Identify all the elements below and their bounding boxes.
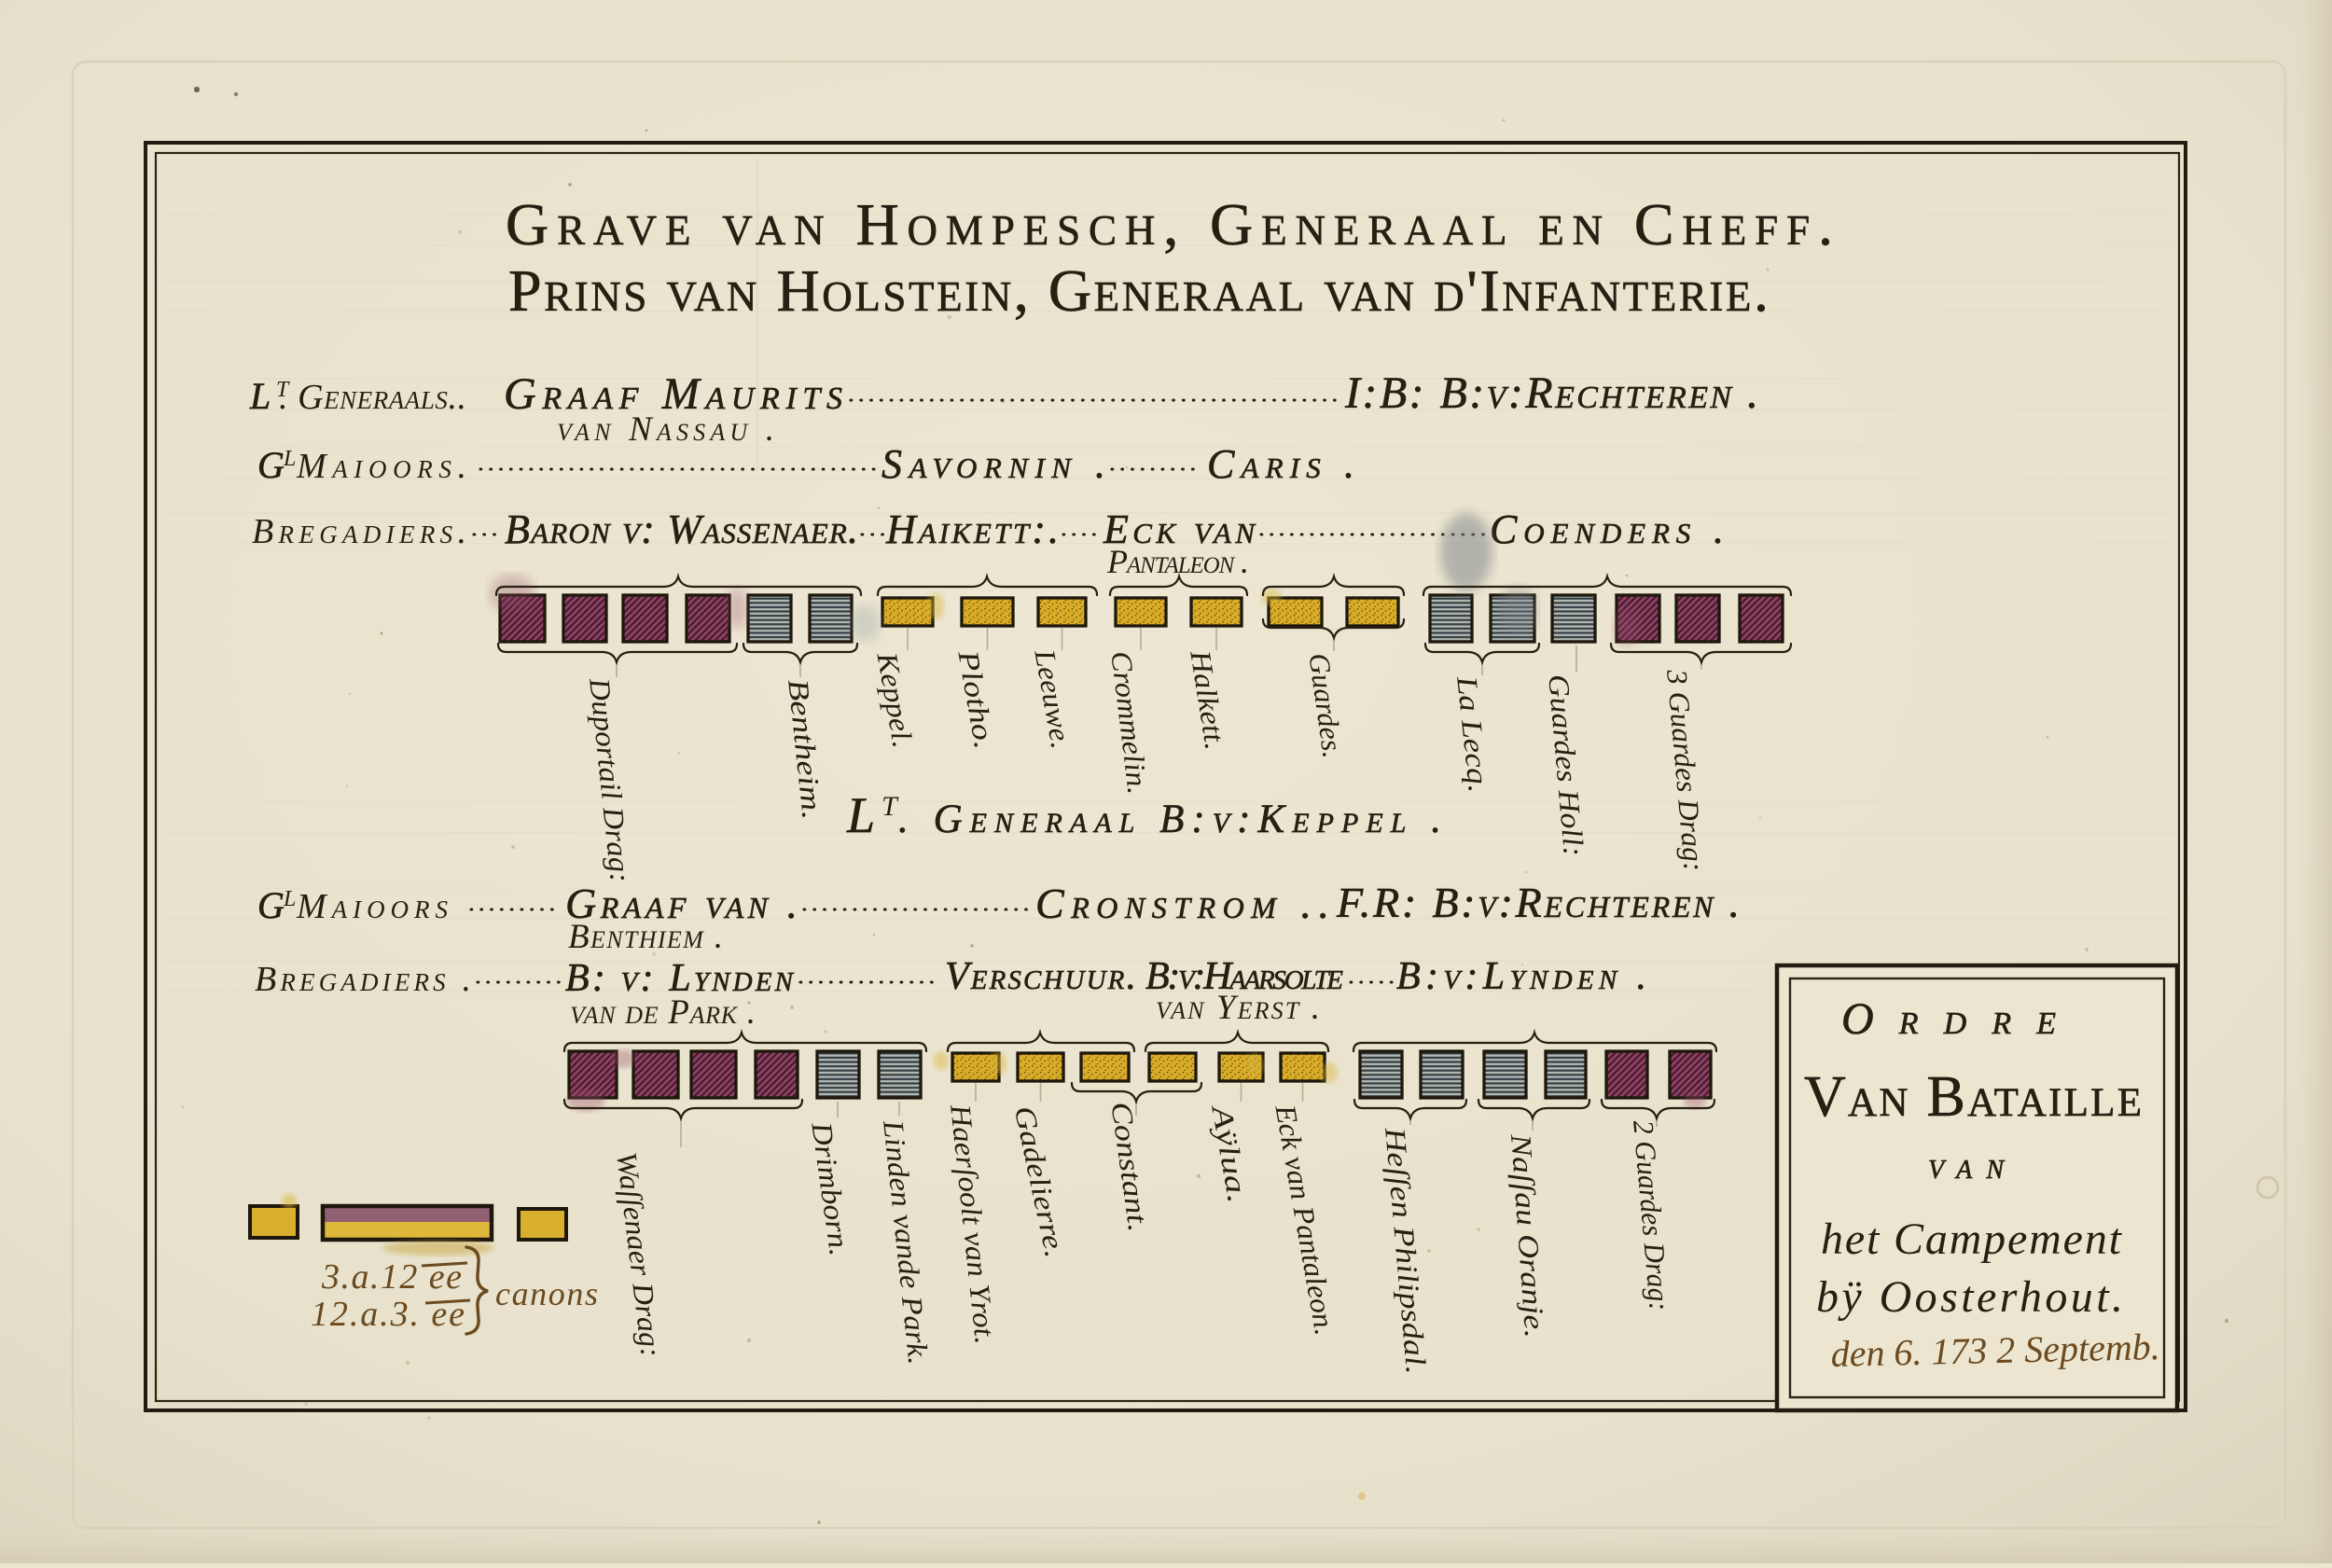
svg-text:12.a.3. ee: 12.a.3. ee [311,1295,465,1334]
svg-text:G: G [257,884,285,926]
svg-text:F.R: B:v:Rechteren .: F.R: B:v:Rechteren . [1336,879,1740,926]
svg-text:het Campement: het Campement [1821,1214,2123,1264]
svg-text:G: G [257,444,285,486]
svg-text:Verschuur.: Verschuur. [945,955,1136,998]
svg-text:. Generaals..: . Generaals.. [279,378,466,417]
svg-text:Maioors.: Maioors. [296,447,466,486]
svg-text:T: T [881,791,899,822]
svg-text:B:v:Lynden .: B:v:Lynden . [1396,955,1646,998]
svg-text:van Nassau .: van Nassau . [557,410,774,449]
svg-text:Pantaleon .: Pantaleon . [1106,543,1249,580]
svg-text:L: L [283,447,296,471]
svg-text:Caris .: Caris . [1207,441,1354,487]
svg-text:Cronstrom ..: Cronstrom .. [1035,880,1329,927]
svg-text:den 6. 173 2 Septemb.: den 6. 173 2 Septemb. [1830,1325,2160,1375]
svg-text:Graaf Maurits: Graaf Maurits [504,369,842,419]
svg-text:Bregadiers .: Bregadiers . [255,960,471,999]
svg-text:Van Bataille: Van Bataille [1804,1065,2142,1129]
svg-text:L: L [846,787,875,843]
svg-text:van: van [1928,1145,2005,1186]
svg-text:L: L [283,887,296,911]
svg-text:I:B: B:v:Rechteren .: I:B: B:v:Rechteren . [1344,368,1758,418]
svg-text:Prins van Holstein, Generaal v: Prins van Holstein, Generaal van d'Infan… [508,257,1769,324]
svg-text:van de Park .: van de Park . [570,993,756,1032]
svg-text:Grave van Hompesch, Generaal e: Grave van Hompesch, Generaal en Cheff. [506,191,1833,257]
svg-text:Coenders .: Coenders . [1490,506,1724,552]
svg-text:Maioors: Maioors [296,887,449,926]
svg-text:van Yerst .: van Yerst . [1156,989,1320,1027]
svg-text:L: L [249,375,271,417]
svg-text:Baron v: Wassenaer.: Baron v: Wassenaer. [505,506,858,552]
svg-text:Benthiem .: Benthiem . [568,918,723,956]
